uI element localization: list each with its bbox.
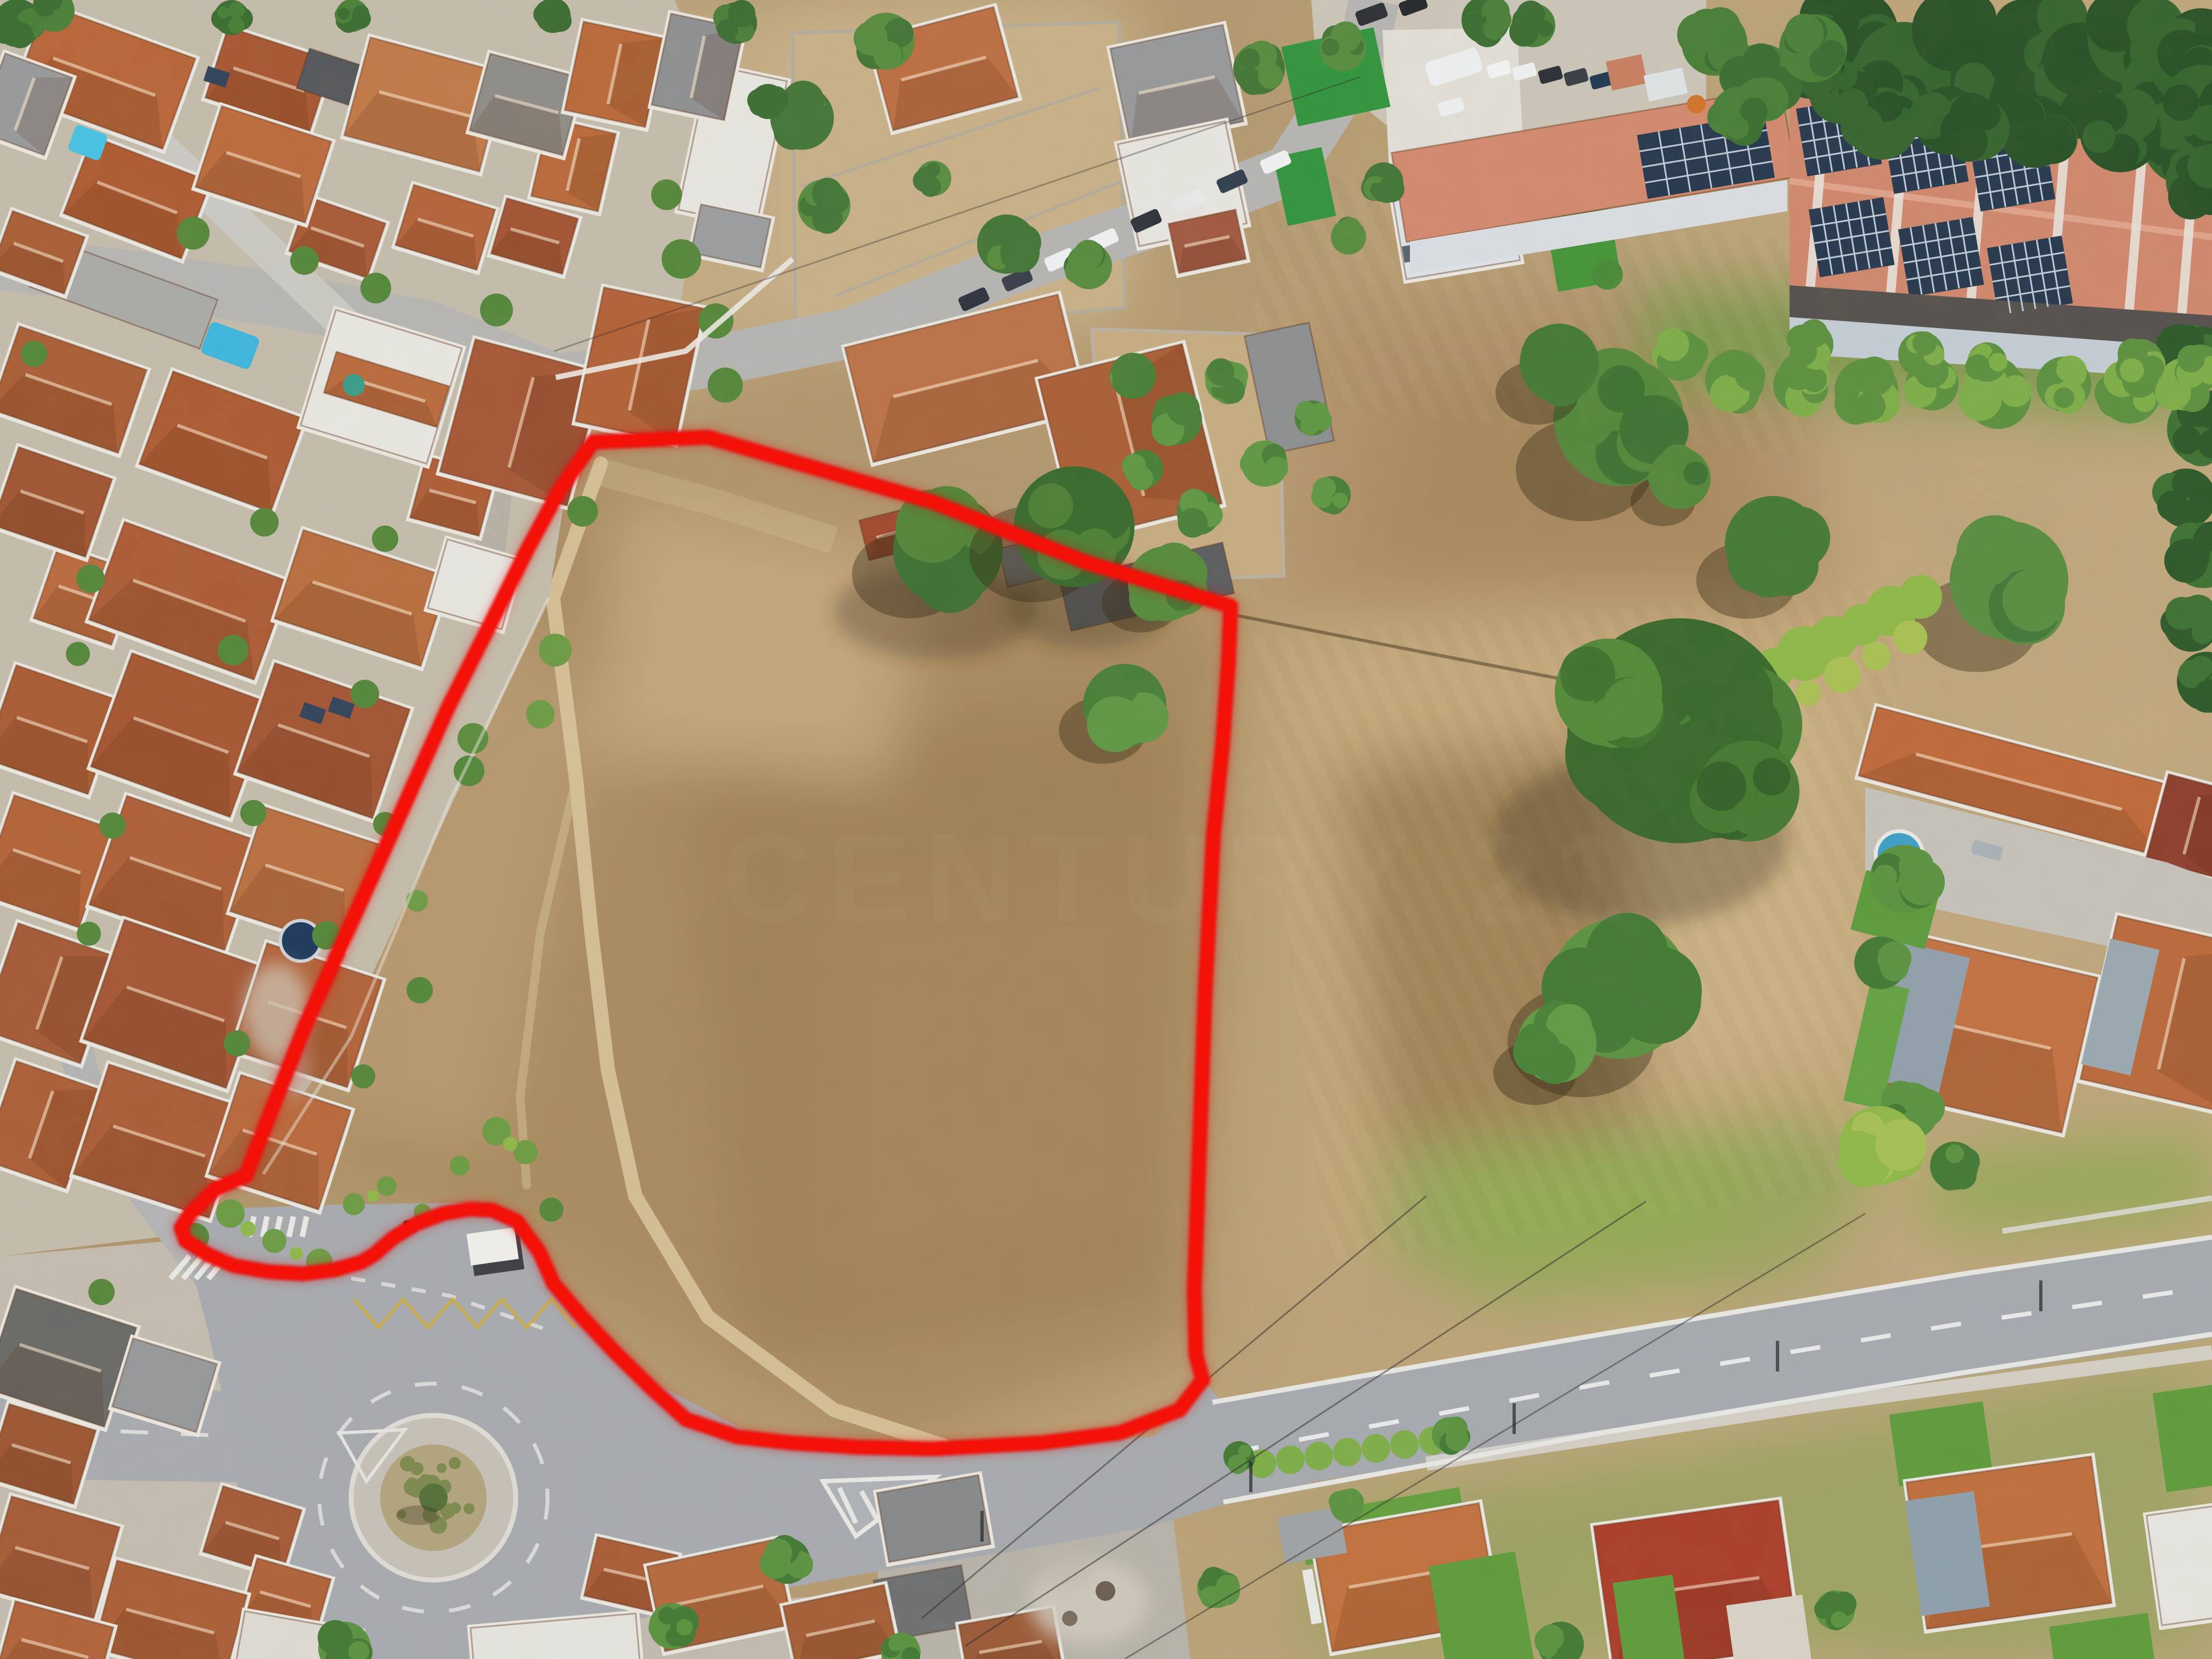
svg-text:CENTURY 21: CENTURY 21 [722,808,1638,949]
